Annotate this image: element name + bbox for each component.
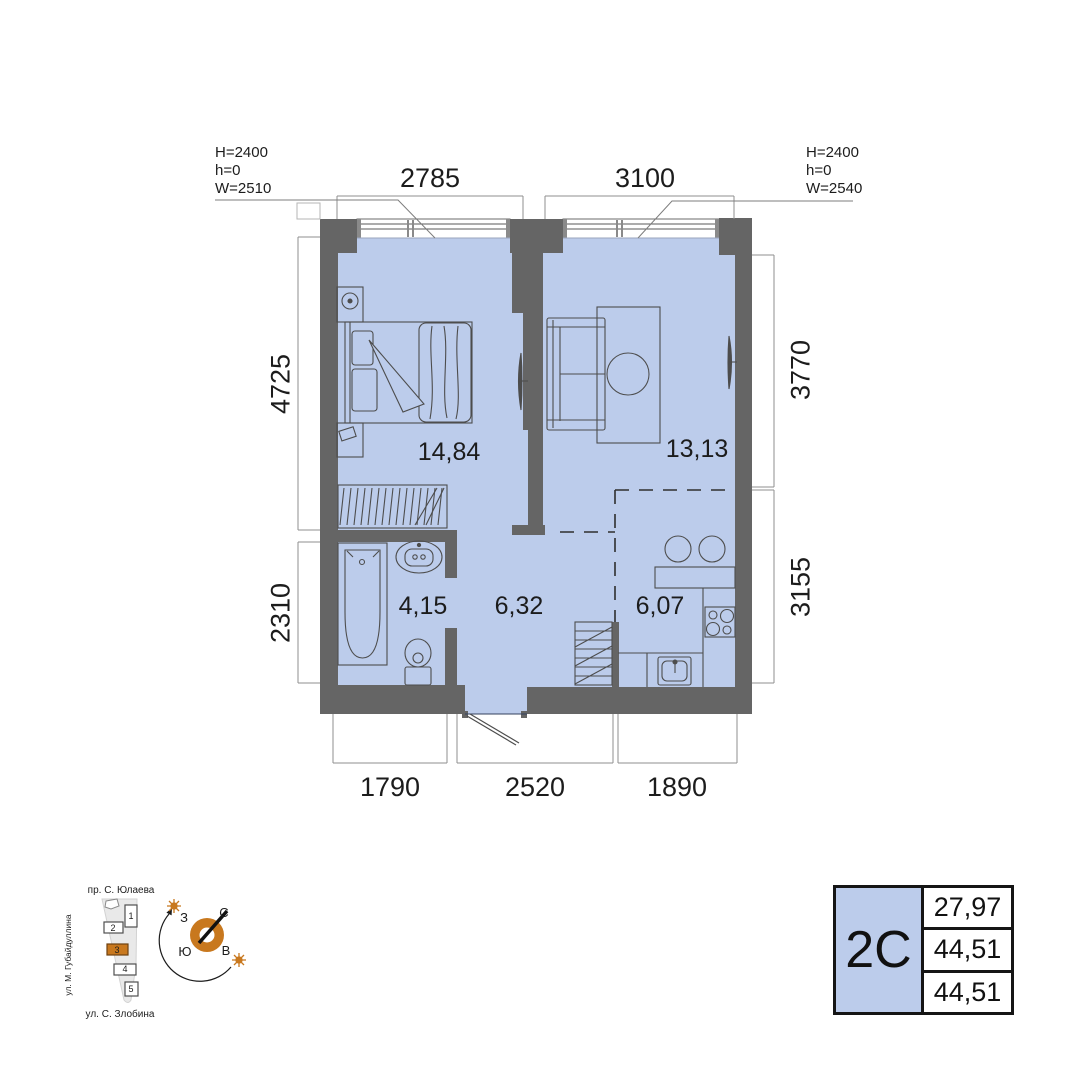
compass: З С Ю В xyxy=(159,899,246,981)
building-1-num: 1 xyxy=(128,911,133,921)
wall-left xyxy=(320,238,338,685)
bedroom-window xyxy=(357,219,510,238)
note-left-line3: W=2510 xyxy=(215,180,271,197)
wall-middle-foot xyxy=(512,525,545,535)
dim-left-2: 2310 xyxy=(265,583,295,643)
entrance-door xyxy=(465,714,527,745)
area-value-2: 44,51 xyxy=(934,934,1002,965)
dim-left-1: 4725 xyxy=(265,354,295,414)
building-2-num: 2 xyxy=(110,923,115,933)
apartment-type-label: 2С xyxy=(845,920,911,980)
table-row: 27,97 xyxy=(924,888,1011,927)
table-row: 44,51 xyxy=(924,970,1011,1012)
wall-bath-top xyxy=(320,530,457,542)
area-bathroom: 4,15 xyxy=(399,592,448,620)
area-value-1: 27,97 xyxy=(934,892,1002,923)
window-notes: H=2400 h=0 W=2510 H=2400 h=0 W=2540 xyxy=(215,144,862,197)
table-row: 44,51 xyxy=(924,927,1011,969)
compass-west: З xyxy=(180,910,188,925)
dim-bottom-2: 2520 xyxy=(505,772,565,802)
apartment-summary-table: 2С 27,97 44,51 44,51 xyxy=(833,885,1014,1015)
apartment-type-cell: 2С xyxy=(836,888,924,1012)
area-value-3: 44,51 xyxy=(934,977,1002,1008)
compass-east: В xyxy=(222,943,231,958)
sun-icon xyxy=(232,953,246,967)
apartment-areas-column: 27,97 44,51 44,51 xyxy=(924,888,1011,1012)
note-left-line2: h=0 xyxy=(215,162,240,179)
site-plan: 1 2 3 4 5 пр. С. Юлаева ул. С. Злобина у… xyxy=(63,885,155,1020)
entrance-floor xyxy=(465,687,527,714)
dim-bottom-1: 1790 xyxy=(360,772,420,802)
dim-top-1: 2785 xyxy=(400,163,460,193)
wall-middle-c xyxy=(528,430,543,525)
wall-corner-tr xyxy=(719,218,752,255)
sun-icon xyxy=(167,899,181,913)
dim-bottom-3: 1890 xyxy=(647,772,707,802)
wall-top-pier xyxy=(510,219,563,253)
wall-bath-right-lower xyxy=(445,628,457,685)
floorplan-page: 2785 3100 1790 2520 1890 4725 2310 3770 … xyxy=(0,0,1080,1080)
compass-south: Ю xyxy=(178,944,191,959)
dim-right-2: 3155 xyxy=(785,557,815,617)
building-3-num: 3 xyxy=(114,945,119,955)
area-kitchen: 6,07 xyxy=(636,592,685,620)
wall-bath-right-upper xyxy=(445,542,457,578)
dim-right-1: 3770 xyxy=(785,340,815,400)
note-left-line1: H=2400 xyxy=(215,144,268,161)
note-right-line2: h=0 xyxy=(806,162,831,179)
area-hall: 6,32 xyxy=(495,592,544,620)
note-right-line3: W=2540 xyxy=(806,180,862,197)
wall-bottom-left xyxy=(320,685,465,714)
building-4-num: 4 xyxy=(122,964,127,974)
wall-kitchen-stub xyxy=(612,622,619,687)
street-bottom-label: ул. С. Злобина xyxy=(86,1008,155,1020)
building-5-num: 5 xyxy=(128,984,133,994)
note-right-line1: H=2400 xyxy=(806,144,859,161)
area-living: 13,13 xyxy=(666,435,729,463)
compass-north: С xyxy=(219,905,228,920)
wall-bottom-right xyxy=(527,687,752,714)
dim-top-2: 3100 xyxy=(615,163,675,193)
wall-middle-a xyxy=(512,253,543,313)
wall-middle-b xyxy=(523,313,543,430)
wall-right xyxy=(735,255,752,687)
area-bedroom: 14,84 xyxy=(418,438,481,466)
street-left-label: ул. М. Губайдуллина xyxy=(63,914,73,995)
street-top-label: пр. С. Юлаева xyxy=(88,885,155,896)
